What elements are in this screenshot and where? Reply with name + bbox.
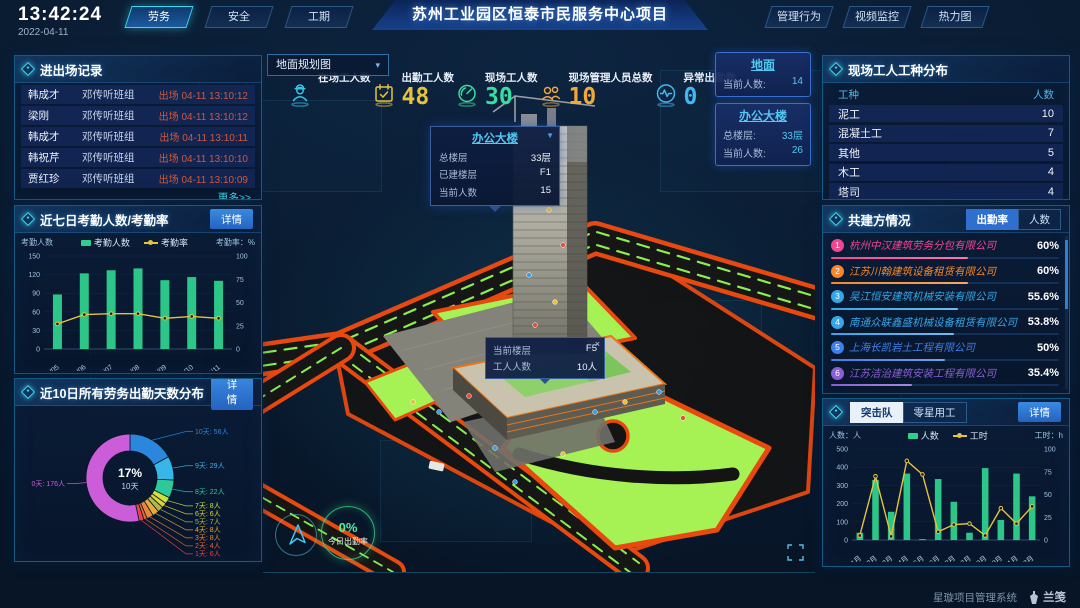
- svg-text:11月: 11月: [1004, 554, 1020, 562]
- table-header: 工种人数: [829, 86, 1063, 103]
- team-tab[interactable]: 突击队: [850, 402, 904, 423]
- stat-label: 出勤工人数: [402, 70, 455, 85]
- brand-logo: 兰笺: [1029, 589, 1066, 605]
- panel-entry-exit: 进出场记录 韩成才邓传听班组出场 04-11 13:10:12梁刚邓传听班组出场…: [14, 55, 262, 200]
- team-name: 邓传听班组: [82, 108, 159, 123]
- partner-list: 1杭州中汉建筑劳务分包有限公司60%2江苏川翰建筑设备租赁有限公司60%3吴江恒…: [823, 238, 1069, 386]
- popup-row: 当前人数15: [439, 185, 551, 199]
- rank-badge: 1: [831, 239, 844, 252]
- panel-worker-types: 现场工人工种分布 工种人数泥工10混凝土工7其他5木工4塔司4: [822, 55, 1070, 200]
- exit-event: 出场 04-11 13:10:11: [159, 129, 248, 144]
- svg-text:500: 500: [836, 447, 848, 454]
- close-icon[interactable]: ×: [595, 339, 600, 349]
- svg-text:30: 30: [32, 328, 40, 335]
- svg-text:04/09: 04/09: [150, 364, 168, 371]
- panel-attendance-days: 近10日所有劳务出勤天数分布 详情 10天: 56人9天: 29人8天: 22人…: [14, 378, 262, 562]
- panel-team-chart: 突击队零星用工 详情 人数：人 人数工时 工时：h 01002003004005…: [822, 398, 1070, 567]
- rank-badge: 3: [831, 290, 844, 303]
- svg-text:0: 0: [1044, 538, 1048, 545]
- worker-type-table: 工种人数泥工10混凝土工7其他5木工4塔司4: [823, 86, 1069, 201]
- svg-text:04/06: 04/06: [69, 364, 87, 371]
- popup-row: 总楼层33层: [439, 150, 551, 164]
- stat-calendar-check: 出勤工人数48: [371, 70, 455, 110]
- svg-text:90: 90: [32, 291, 40, 298]
- company-name: 上海长凯岩土工程有限公司: [849, 340, 1032, 355]
- stat-value: 48: [402, 85, 455, 110]
- attendance-rate: 60%: [1037, 265, 1059, 277]
- svg-text:1月: 1月: [850, 554, 864, 562]
- company-name: 南通众联鑫盛机械设备租赁有限公司: [849, 315, 1023, 330]
- exit-event: 出场 04-11 13:10:10: [159, 150, 248, 165]
- chart-legend: 人数工时: [908, 429, 988, 442]
- building-card-title: 地面: [723, 56, 803, 73]
- svg-text:8天: 22人: 8天: 22人: [195, 488, 225, 496]
- svg-text:2天: 4人: 2天: 4人: [195, 542, 221, 550]
- rank-badge: 5: [831, 341, 844, 354]
- svg-text:0: 0: [844, 538, 848, 545]
- stat-gauge: 现场工人数30: [454, 70, 538, 110]
- company-name: 吴江恒安建筑机械安装有限公司: [849, 289, 1023, 304]
- partner-tab-group: 出勤率人数: [966, 209, 1062, 230]
- left-tab-group: 劳务安全工期: [128, 6, 350, 28]
- svg-text:6月: 6月: [928, 554, 942, 562]
- tooltip-row: 工人人数10人: [493, 359, 597, 373]
- attendance-days-donut-chart: 10天: 56人9天: 29人8天: 22人7天: 8人6天: 6人5天: 7人…: [18, 406, 258, 558]
- svg-text:04/07: 04/07: [96, 364, 114, 371]
- legend-item: 考勤人数: [81, 236, 130, 249]
- svg-text:8月: 8月: [959, 554, 973, 562]
- legend-item: 人数: [908, 429, 939, 442]
- scrollbar[interactable]: [1065, 236, 1068, 389]
- right-tab-group: 管理行为视频监控热力图: [768, 6, 986, 28]
- right-axis-caption: 考勤率：%: [216, 237, 255, 248]
- worker-type: 塔司: [838, 184, 1014, 200]
- worker-name: 韩成才: [28, 87, 82, 102]
- svg-text:4月: 4月: [897, 554, 911, 562]
- detail-button[interactable]: 详情: [211, 378, 253, 410]
- attendance-rate: 35.4%: [1028, 367, 1059, 379]
- rank-badge: 2: [831, 265, 844, 278]
- svg-text:10月: 10月: [987, 554, 1004, 562]
- worker-name: 韩祝芹: [28, 150, 82, 165]
- table-row[interactable]: 木工4: [829, 164, 1063, 181]
- progress-bar: [831, 384, 912, 386]
- svg-text:5月: 5月: [912, 554, 926, 562]
- compass-icon[interactable]: [275, 514, 317, 556]
- company-name: 杭州中汉建筑劳务分包有限公司: [849, 238, 1032, 253]
- svg-text:9天: 29人: 9天: 29人: [195, 462, 225, 470]
- svg-text:100: 100: [1044, 447, 1056, 454]
- chevron-down-icon[interactable]: ▼: [546, 131, 554, 140]
- attendance-bar-line-chart: 0306090120150025507510004/0504/0604/0704…: [18, 249, 258, 371]
- top-tab[interactable]: 视频监控: [842, 6, 911, 28]
- pulse-icon: [653, 81, 679, 107]
- more-link[interactable]: 更多>>: [25, 190, 251, 200]
- tooltip-row: 当前楼层F5: [493, 343, 597, 357]
- stat-label: 现场管理人员总数: [569, 70, 653, 85]
- detail-button[interactable]: 详情: [1018, 402, 1061, 422]
- panel-title: 近七日考勤人数/考勤率: [40, 210, 168, 229]
- worker-count: 10: [1014, 108, 1054, 120]
- svg-text:04/11: 04/11: [204, 364, 222, 371]
- diamond-icon: [829, 405, 843, 419]
- svg-text:6天: 6人: 6天: 6人: [195, 510, 221, 518]
- building-card-title: 办公大楼: [723, 107, 803, 124]
- svg-text:100: 100: [836, 519, 848, 526]
- stats-row: 在场工人数出勤工人数48现场工人数30现场管理人员总数10异常出勤数0: [287, 70, 711, 110]
- calendar-check-icon: [371, 81, 397, 107]
- progress-bar: [831, 257, 968, 259]
- map-type-select[interactable]: 地面规划图 ▾: [267, 54, 389, 76]
- svg-text:200: 200: [836, 501, 848, 508]
- entry-exit-row[interactable]: 贾红珍邓传听班组出场 04-11 13:10:09: [21, 169, 255, 188]
- attendance-rate: 53.8%: [1028, 316, 1059, 328]
- svg-text:04/05: 04/05: [43, 364, 61, 371]
- svg-text:7天: 8人: 7天: 8人: [195, 502, 221, 510]
- building-card-row: 当前人数:14: [723, 76, 803, 91]
- svg-text:25: 25: [236, 323, 244, 330]
- panel-attendance-7d: 近七日考勤人数/考勤率 详情 考勤人数 考勤人数考勤率 考勤率：% 030609…: [14, 205, 262, 374]
- partner-row[interactable]: 5上海长凯岩土工程有限公司50%: [831, 340, 1059, 361]
- svg-text:7月: 7月: [944, 554, 958, 562]
- company-name: 江苏川翰建筑设备租赁有限公司: [849, 264, 1032, 279]
- panel-title: 近10日所有劳务出勤天数分布: [40, 383, 204, 402]
- worker-name: 梁刚: [28, 108, 82, 123]
- worker-type: 其他: [838, 145, 1014, 161]
- stat-value: 30: [485, 85, 538, 110]
- panel-partners: 共建方情况 出勤率人数 1杭州中汉建筑劳务分包有限公司60%2江苏川翰建筑设备租…: [822, 205, 1070, 394]
- progress-bar: [831, 282, 968, 284]
- svg-text:0天: 176人: 0天: 176人: [32, 480, 65, 488]
- svg-text:3天: 8人: 3天: 8人: [195, 534, 221, 542]
- progress-bar: [831, 308, 958, 310]
- legend-item: 工时: [953, 429, 988, 442]
- table-row[interactable]: 泥工10: [829, 105, 1063, 122]
- svg-text:75: 75: [1044, 469, 1052, 476]
- partner-row[interactable]: 2江苏川翰建筑设备租赁有限公司60%: [831, 264, 1059, 285]
- entry-exit-row[interactable]: 梁刚邓传听班组出场 04-11 13:10:12: [21, 106, 255, 125]
- diamond-icon: [829, 212, 843, 226]
- top-tab[interactable]: 热力图: [920, 6, 989, 28]
- building-cards: 地面当前人数:14办公大楼总楼层:33层当前人数:26: [715, 52, 811, 172]
- svg-text:50: 50: [1044, 492, 1052, 499]
- partner-row[interactable]: 6江苏洁治建筑安装工程有限公司35.4%: [831, 366, 1059, 387]
- date: 2022-04-11: [18, 27, 102, 38]
- svg-text:12月: 12月: [1019, 554, 1036, 562]
- worker-type: 木工: [838, 164, 1014, 180]
- building-card[interactable]: 地面当前人数:14: [715, 52, 811, 97]
- worker-count: 5: [1014, 147, 1054, 159]
- svg-text:60: 60: [32, 309, 40, 316]
- stat-label: 现场工人数: [485, 70, 538, 85]
- diamond-icon: [21, 62, 35, 76]
- svg-text:04/10: 04/10: [177, 364, 195, 371]
- building-card-row: 总楼层:33层: [723, 127, 803, 142]
- right-axis-caption: 工时：h: [1035, 430, 1063, 441]
- svg-text:300: 300: [836, 483, 848, 490]
- team-name: 邓传听班组: [82, 129, 159, 144]
- entry-exit-list: 韩成才邓传听班组出场 04-11 13:10:12梁刚邓传听班组出场 04-11…: [15, 85, 261, 188]
- attendance-rate: 50%: [1037, 342, 1059, 354]
- svg-text:150: 150: [28, 254, 40, 261]
- left-axis-caption: 考勤人数: [21, 237, 53, 248]
- svg-text:0: 0: [236, 347, 240, 354]
- stat-value: 10: [569, 85, 653, 110]
- site-3d-view[interactable]: 地面规划图 ▾ 在场工人数出勤工人数48现场工人数30现场管理人员总数10异常出…: [263, 50, 815, 573]
- rank-badge: 4: [831, 316, 844, 329]
- left-axis-caption: 人数：人: [829, 430, 861, 441]
- svg-text:1天: 6人: 1天: 6人: [195, 550, 221, 558]
- exit-event: 出场 04-11 13:10:12: [159, 108, 248, 123]
- attendance-rate: 60%: [1037, 240, 1059, 252]
- exit-event: 出场 04-11 13:10:09: [159, 171, 248, 186]
- panel-title: 进出场记录: [40, 60, 103, 79]
- building-popup-title[interactable]: 办公大楼: [439, 130, 551, 146]
- svg-text:3月: 3月: [881, 554, 895, 562]
- stat-people: 现场管理人员总数10: [538, 70, 653, 110]
- svg-text:25: 25: [1044, 515, 1052, 522]
- rank-badge: 6: [831, 367, 844, 380]
- entry-exit-row[interactable]: 韩祝芹邓传听班组出场 04-11 13:10:10: [21, 148, 255, 167]
- entry-exit-row[interactable]: 韩成才邓传听班组出场 04-11 13:10:12: [21, 85, 255, 104]
- worker-count: 7: [1014, 127, 1054, 139]
- svg-text:0: 0: [36, 347, 40, 354]
- svg-text:50: 50: [236, 300, 244, 307]
- worker-count: 4: [1014, 186, 1054, 198]
- building-popup[interactable]: 办公大楼 ▼ 总楼层33层已建楼层F1当前人数15: [430, 126, 560, 206]
- entry-exit-row[interactable]: 韩成才邓传听班组出场 04-11 13:10:11: [21, 127, 255, 146]
- worker-icon: [287, 81, 313, 107]
- partner-row[interactable]: 3吴江恒安建筑机械安装有限公司55.6%: [831, 289, 1059, 310]
- dashboard-root: 13:42:24 2022-04-11 劳务安全工期 苏州工业园区恒泰市民服务中…: [0, 0, 1080, 608]
- team-bar-line-chart: 010020030040050002550751001月2月3月4月5月6月7月…: [826, 442, 1066, 562]
- top-tab[interactable]: 工期: [284, 6, 353, 28]
- diamond-icon: [829, 62, 843, 76]
- popup-row: 已建楼层F1: [439, 167, 551, 181]
- svg-text:100: 100: [236, 254, 248, 261]
- gauge-icon: [454, 81, 480, 107]
- pen-icon: [1029, 591, 1039, 604]
- attendance-label: 今日出勤率: [328, 536, 368, 547]
- top-tab[interactable]: 劳务: [124, 6, 193, 28]
- svg-text:4天: 8人: 4天: 8人: [195, 526, 221, 534]
- today-attendance-badge: 0% 今日出勤率: [321, 506, 375, 560]
- team-name: 邓传听班组: [82, 171, 159, 186]
- stat-worker: 在场工人数: [287, 70, 371, 110]
- team-name: 邓传听班组: [82, 87, 159, 102]
- panel-title: 共建方情况: [848, 210, 911, 229]
- svg-text:04/08: 04/08: [123, 364, 141, 371]
- panel-title: 现场工人工种分布: [848, 60, 948, 79]
- svg-text:10天: 56人: 10天: 56人: [195, 428, 228, 436]
- svg-text:120: 120: [28, 272, 40, 279]
- attendance-percent: 0%: [339, 520, 358, 535]
- page-title: 苏州工业园区恒泰市民服务中心项目: [372, 0, 708, 30]
- svg-text:75: 75: [236, 277, 244, 284]
- detail-button[interactable]: 详情: [210, 209, 253, 229]
- clock: 13:42:24 2022-04-11: [18, 4, 102, 38]
- svg-text:400: 400: [836, 465, 848, 472]
- footer: 星璇项目管理系统 兰笺: [933, 589, 1066, 605]
- partner-tab[interactable]: 人数: [1018, 209, 1061, 230]
- team-tab-group: 突击队零星用工: [850, 402, 967, 423]
- worker-type: 混凝土工: [838, 125, 1014, 141]
- company-name: 江苏洁治建筑安装工程有限公司: [849, 366, 1023, 381]
- svg-text:17%: 17%: [118, 466, 142, 480]
- legend-item: 考勤率: [144, 236, 188, 249]
- diamond-icon: [21, 385, 35, 399]
- partner-row[interactable]: 4南通众联鑫盛机械设备租赁有限公司53.8%: [831, 315, 1059, 336]
- exit-event: 出场 04-11 13:10:12: [159, 87, 248, 102]
- building-card[interactable]: 办公大楼总楼层:33层当前人数:26: [715, 103, 811, 166]
- worker-name: 贾红珍: [28, 171, 82, 186]
- time: 13:42:24: [18, 4, 102, 26]
- attendance-rate: 55.6%: [1028, 291, 1059, 303]
- top-tab[interactable]: 安全: [204, 6, 273, 28]
- worker-count: 4: [1014, 166, 1054, 178]
- table-row[interactable]: 其他5: [829, 144, 1063, 161]
- svg-text:9月: 9月: [975, 554, 989, 562]
- worker-name: 韩成才: [28, 129, 82, 144]
- map-type-value: 地面规划图: [276, 55, 331, 75]
- team-name: 邓传听班组: [82, 150, 159, 165]
- progress-bar: [831, 359, 945, 361]
- chevron-down-icon: ▾: [375, 55, 380, 75]
- partner-tab[interactable]: 出勤率: [966, 209, 1020, 230]
- progress-bar: [831, 333, 954, 335]
- team-tab[interactable]: 零星用工: [903, 402, 967, 423]
- partner-row[interactable]: 1杭州中汉建筑劳务分包有限公司60%: [831, 238, 1059, 259]
- stat-value: [318, 85, 371, 110]
- svg-text:5天: 7人: 5天: 7人: [195, 518, 221, 526]
- building-card-row: 当前人数:26: [723, 145, 803, 160]
- svg-text:2月: 2月: [865, 554, 879, 562]
- svg-text:10天: 10天: [122, 482, 139, 491]
- top-tab[interactable]: 管理行为: [764, 6, 833, 28]
- worker-type: 泥工: [838, 106, 1014, 122]
- table-row[interactable]: 混凝土工7: [829, 125, 1063, 142]
- system-name: 星璇项目管理系统: [933, 590, 1017, 605]
- diamond-icon: [21, 212, 35, 226]
- chart-legend: 考勤人数考勤率: [81, 236, 188, 249]
- floor-tooltip[interactable]: × 当前楼层F5工人人数10人: [485, 337, 605, 379]
- fullscreen-icon[interactable]: [787, 544, 804, 561]
- people-icon: [538, 81, 564, 107]
- table-row[interactable]: 塔司4: [829, 183, 1063, 200]
